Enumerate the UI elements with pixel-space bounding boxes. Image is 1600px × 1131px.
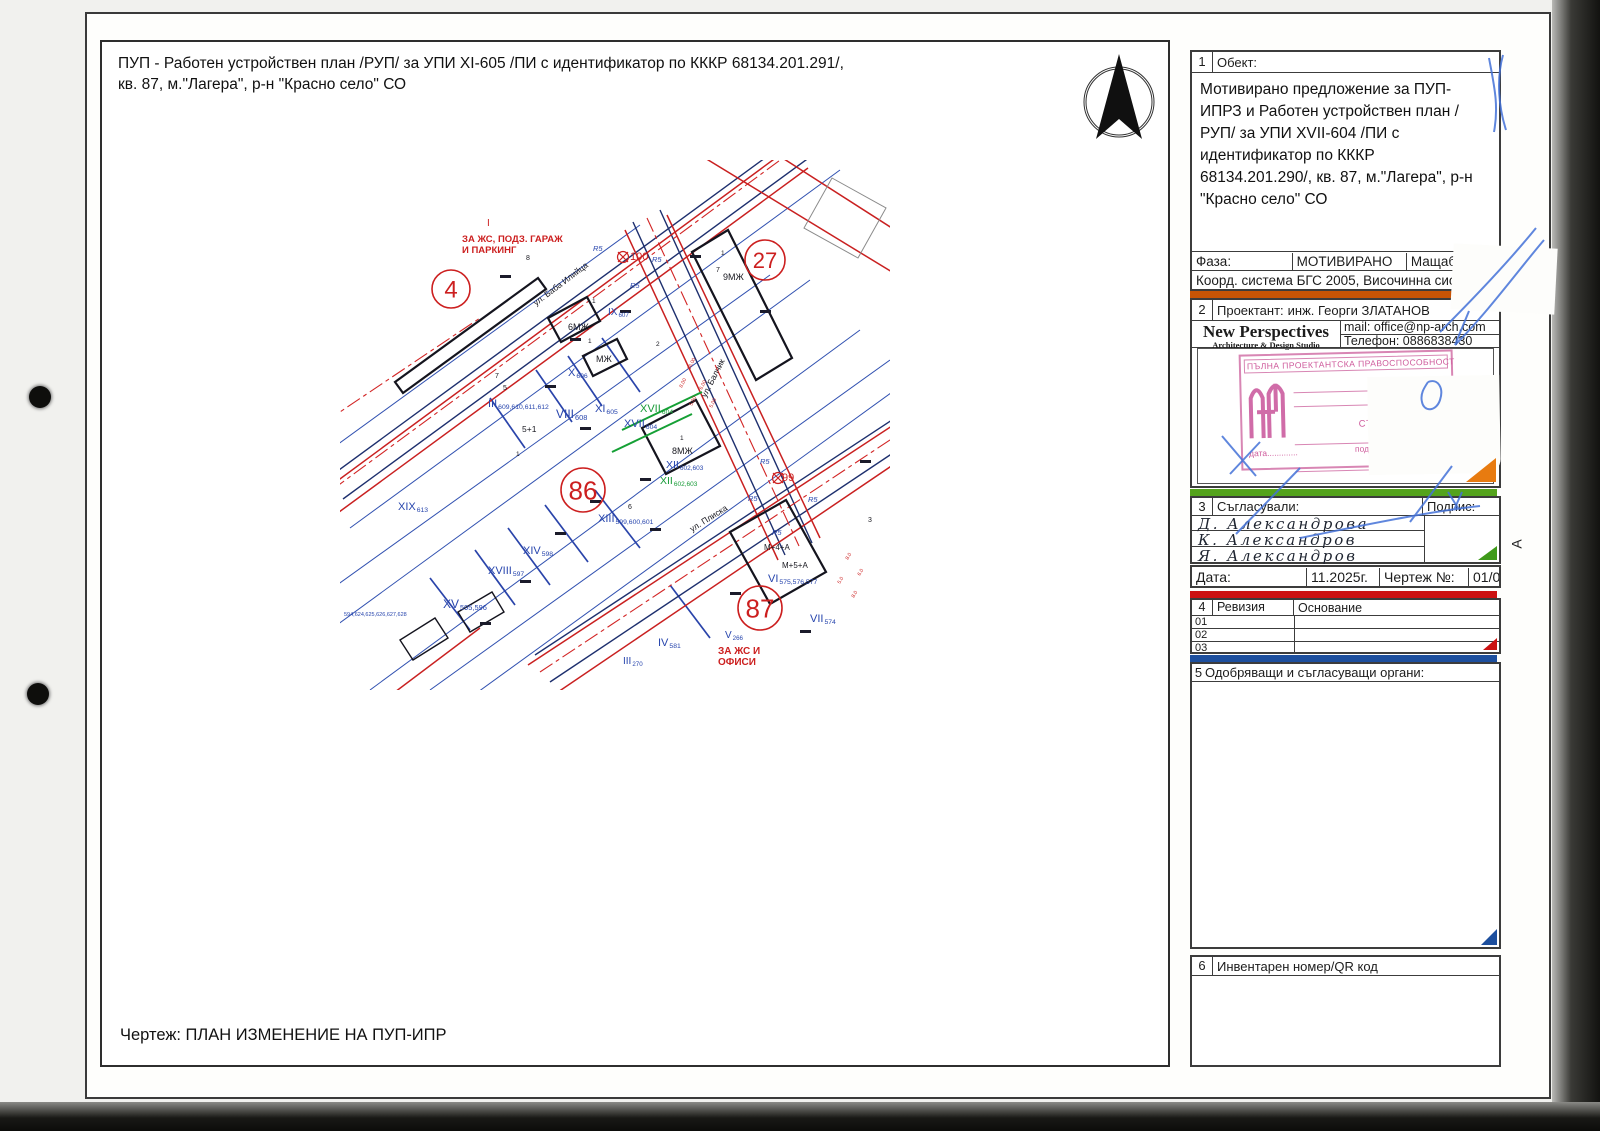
studio-name: New Perspectives — [1192, 323, 1340, 340]
plot-circle: 86 — [569, 475, 598, 505]
date-value: 11.2025г. — [1307, 568, 1380, 586]
map-label: 594,624,625,626,627,628 — [344, 612, 407, 618]
inventory-label: Инвентарен номер/QR код — [1213, 959, 1378, 974]
section-bar-green — [1190, 489, 1497, 496]
parcel-lines — [340, 170, 890, 690]
revision-row: 03 — [1192, 642, 1295, 654]
designer-box-number: 2 — [1192, 300, 1213, 320]
map-label: 6.0 — [857, 568, 866, 577]
map-label: IX607 — [608, 307, 629, 319]
map-label: IV581 — [658, 637, 681, 650]
signature-label: Подпис: — [1422, 498, 1499, 515]
map-label: И ПАРКИНГ — [462, 245, 517, 256]
designer-label: Проектант: — [1213, 303, 1284, 318]
inventory-box-number: 6 — [1192, 957, 1213, 975]
map-label: XVII604 — [640, 403, 673, 416]
section-bar-blue — [1190, 655, 1497, 662]
designer-phone: Телефон: 0886838430 — [1341, 335, 1499, 347]
phase-value: МОТИВИРАНО — [1293, 253, 1407, 270]
map-label: ЗА ЖС, ПОДЗ. ГАРАЖ — [462, 234, 563, 245]
map-label: I — [487, 218, 490, 229]
phase-label: Фаза: — [1192, 253, 1293, 270]
plot-circle: 27 — [753, 248, 777, 273]
map-label: XII602,603 — [660, 475, 698, 488]
map-label: 8.0 — [851, 590, 860, 599]
drawing-number-value: 01/02 — [1469, 568, 1499, 586]
plot-circle: 87 — [746, 593, 775, 623]
map-label: 7 — [495, 373, 499, 380]
scanned-plan-sheet: { "page": { "sheet_title": "ПУП - Работе… — [0, 0, 1600, 1131]
map-label: 1 — [592, 298, 596, 305]
map-label: ЗА ЖС И — [718, 646, 760, 657]
sheet-title: ПУП - Работен устройствен план /РУП/ за … — [118, 54, 878, 96]
designer-name: инж. Георги ЗЛАТАНОВ — [1284, 303, 1430, 318]
map-label: R5 — [652, 255, 662, 264]
stamp-date-line: дата............. — [1249, 447, 1298, 458]
map-label: 1 — [721, 250, 725, 257]
map-label: XVIII597 — [488, 565, 524, 578]
revision-label: Ревизия — [1213, 600, 1294, 615]
inventory-box: 6 Инвентарен номер/QR код — [1190, 955, 1501, 1067]
map-label: XI605 — [595, 403, 618, 416]
revision-row: 02 — [1192, 629, 1295, 641]
map-label: XIX613 — [398, 501, 428, 514]
plot-circle: 4 — [444, 277, 457, 304]
map-label: III270 — [623, 656, 643, 668]
map-label: 1 — [680, 435, 684, 442]
paper-overlay-scale — [1450, 243, 1557, 314]
object-box-number: 1 — [1192, 52, 1213, 72]
map-label: 8.0 — [845, 552, 854, 561]
map-label: XIII599,600,601 — [598, 513, 654, 526]
map-label: R5 — [593, 244, 603, 253]
section-bar-red — [1190, 591, 1497, 598]
street-curbs — [340, 160, 890, 682]
authorities-label: Одобряващи и съгласуващи органи: — [1205, 665, 1424, 680]
scan-edge-bottom — [0, 1102, 1600, 1131]
map-label: XIV598 — [523, 545, 553, 558]
punch-hole-top — [29, 386, 51, 408]
map-label: 8 — [526, 255, 530, 262]
map-label: 100 — [630, 251, 648, 263]
revision-basis-label: Основание — [1294, 601, 1362, 615]
approvals-box: 3 Съгласували: Подпис: Д. Александрова К… — [1190, 496, 1501, 564]
map-label: 5.0 — [837, 576, 846, 585]
approvals-box-number: 3 — [1192, 498, 1213, 515]
map-label: X606 — [568, 367, 588, 380]
map-label: 1 — [516, 451, 520, 458]
designer-mail: mail: office@np-arch.com — [1341, 321, 1499, 335]
map-label: V266 — [725, 630, 744, 642]
map-label: ул. Плиска — [688, 503, 730, 534]
map-label: R5 — [772, 528, 782, 537]
map-label: 5 — [503, 385, 507, 392]
authorities-box-number: 5 — [1192, 664, 1205, 681]
approvals-label: Съгласували: — [1213, 499, 1422, 514]
map-label: ул. Балчик — [699, 357, 727, 399]
street-axes — [340, 160, 890, 672]
map-label: R5 — [748, 494, 758, 503]
buildings — [395, 230, 826, 604]
object-box-label: Обект: — [1213, 55, 1257, 70]
map-label: M+4+A — [764, 543, 790, 552]
authorities-box: 5 Одобряващи и съгласуващи органи: — [1190, 662, 1501, 949]
edge-marker-letter: A — [1509, 539, 1525, 548]
map-label: 2 — [656, 341, 660, 348]
kab-logo-icon — [1246, 377, 1290, 440]
map-label: 7 — [716, 267, 720, 274]
map-label: III609,610,611,612 — [488, 398, 549, 411]
map-label: 8.00 — [678, 377, 688, 389]
drawing-number-label: Чертеж №: — [1380, 568, 1469, 586]
map-label: VII574 — [810, 613, 836, 626]
approver-signature: Я. Александров — [1198, 547, 1358, 565]
map-labels: IЗА ЖС, ПОДЗ. ГАРАЖИ ПАРКИНГ8179МЖ100R5R… — [344, 218, 872, 668]
regulation-lines — [340, 160, 890, 690]
scan-edge-right — [1552, 0, 1600, 1131]
map-label: 99 — [782, 472, 794, 484]
map-label: 9МЖ — [723, 272, 745, 282]
north-arrow-icon — [1075, 50, 1165, 145]
revision-row: 01 — [1192, 616, 1295, 628]
revision-box: 4 Ревизия Основание 01 02 03 — [1190, 598, 1501, 654]
map-label: XII602,603 — [666, 459, 704, 472]
outlined-plot — [804, 178, 886, 258]
stamp-title: ПЪЛНА ПРОЕКТАНТСКА ПРАВОСПОСОБНОСТ — [1244, 355, 1448, 374]
object-description: Мотивирано предложение за ПУП-ИПРЗ и Раб… — [1192, 73, 1499, 217]
elevation-marks — [480, 255, 871, 633]
date-label: Дата: — [1192, 568, 1307, 586]
map-label: 3 — [868, 517, 872, 524]
map-label: VI575,576,577 — [768, 573, 818, 586]
revision-box-number: 4 — [1192, 600, 1213, 615]
map-label: 5+1 — [522, 424, 537, 434]
map-label: ОФИСИ — [718, 657, 756, 668]
cadastral-map: 4278687 IЗА ЖС, ПОДЗ. ГАРАЖИ ПАРКИНГ8179… — [340, 160, 890, 690]
drawing-caption: Чертеж: ПЛАН ИЗМЕНЕНИЕ НА ПУП-ИПР — [120, 1026, 447, 1045]
paper-overlay-stamp — [1367, 375, 1501, 475]
map-label: 1 — [588, 338, 592, 345]
plot-number-circles: 4278687 — [432, 240, 785, 630]
punch-hole-bottom — [27, 683, 49, 705]
date-row: Дата: 11.2025г. Чертеж №: 01/02 — [1190, 565, 1501, 588]
map-label: XVII604 — [624, 418, 657, 431]
map-label: 6 — [628, 504, 632, 511]
map-label: M+5+A — [782, 561, 808, 570]
map-label: 6МЖ — [568, 322, 590, 332]
map-label: R5 — [808, 495, 818, 504]
map-label: 8МЖ — [672, 446, 694, 456]
map-label: МЖ — [596, 354, 612, 364]
map-label: R5 — [630, 281, 640, 290]
map-label: R5 — [760, 457, 770, 466]
